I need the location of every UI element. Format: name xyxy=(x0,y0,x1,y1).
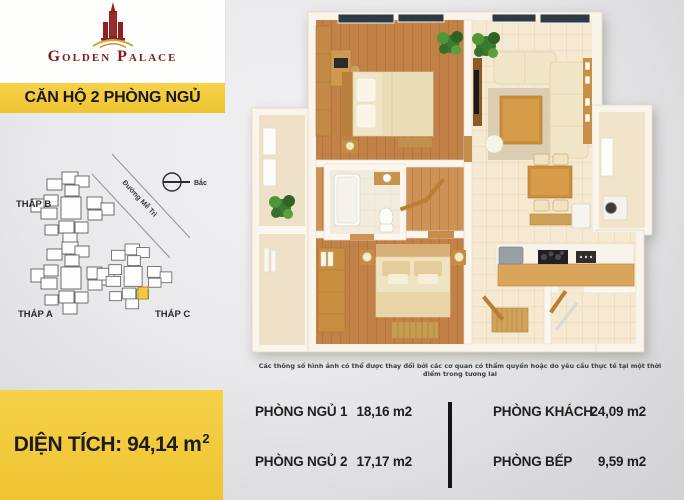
bedroom2-door-gap xyxy=(428,231,454,238)
table-divider xyxy=(448,402,452,488)
brand-name: Golden Palace xyxy=(48,48,178,66)
room-area: 9,59 m2 xyxy=(558,454,646,469)
tower-c-cluster xyxy=(97,244,172,309)
room-areas-table: PHÒNG NGỦ 1 18,16 m2 PHÒNG NGỦ 2 17,17 m… xyxy=(230,390,684,500)
highlighted-unit xyxy=(138,287,148,299)
room-area: 24,09 m2 xyxy=(558,404,646,419)
apartment-type-label: CĂN HỘ 2 PHÒNG NGỦ xyxy=(25,89,201,107)
total-area-superscript: 2 xyxy=(202,431,209,446)
north-label: Bắc xyxy=(194,178,207,187)
total-area-box: DIỆN TÍCH: 94,14 m2 xyxy=(0,390,223,500)
apartment-type-banner: CĂN HỘ 2 PHÒNG NGỦ xyxy=(0,83,225,113)
brand-logo-icon xyxy=(89,0,137,50)
floor-plan-render xyxy=(246,2,666,357)
tower-c-label: THÁP C xyxy=(155,309,190,320)
brand-card: Golden Palace xyxy=(0,0,225,83)
room-area: 17,17 m2 xyxy=(328,454,412,469)
total-area-label: DIỆN TÍCH: 94,14 m xyxy=(14,433,202,457)
tower-b-label: THÁP B xyxy=(16,199,51,210)
bathroom xyxy=(324,164,406,240)
north-compass-icon: Bắc xyxy=(163,173,207,191)
poster: Golden Palace CĂN HỘ 2 PHÒNG NGỦ Đường M… xyxy=(0,0,684,500)
disclaimer-text: Các thông số hình ảnh có thể được thay đ… xyxy=(250,362,670,378)
room-area: 18,16 m2 xyxy=(328,404,412,419)
wc-door-gap xyxy=(558,286,584,293)
bedroom1-door-gap xyxy=(464,136,472,162)
site-map: Đường Mễ Trì Bắc THÁP B THÁP A THÁP C xyxy=(0,130,225,360)
kitchen xyxy=(496,244,634,286)
tower-a-label: THÁP A xyxy=(18,309,53,320)
